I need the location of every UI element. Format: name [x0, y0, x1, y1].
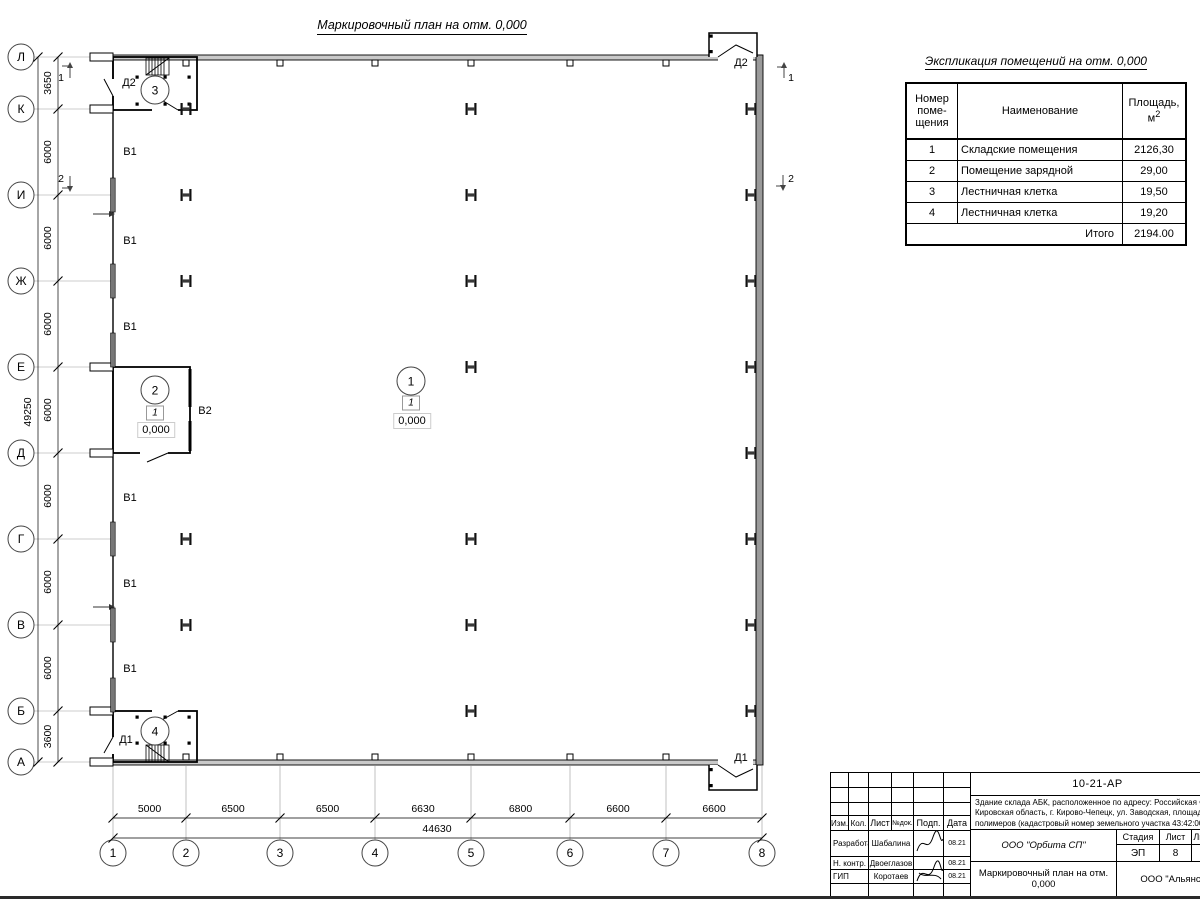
plan-annotation: В1 — [123, 146, 136, 158]
signature-icon — [914, 859, 945, 887]
section-mark-label: 1 — [788, 72, 794, 84]
plan-annotation: Д1 — [119, 734, 133, 746]
columns-header-row: Изм. Кол. Лист №док. Подп. Дата — [831, 816, 970, 831]
explication-title-text: Экспликация помещений на отм. 0,000 — [925, 54, 1147, 70]
drawing-sheet: Маркировочный план на отм. 0,000 — [0, 0, 1200, 900]
floor-flag: 1 — [146, 406, 164, 421]
table-row: 3Лестничная клетка19,50 — [906, 182, 1186, 203]
role-row: Н. контр. Двоеглазов 08.21 — [831, 857, 970, 871]
section-mark-label: 1 — [58, 72, 64, 84]
title-block-left: Изм. Кол. Лист №док. Подп. Дата Разработ… — [831, 773, 970, 897]
plan-labels: Д2Д2Д1Д1В1В1В1В1В1В1В212123214110,0000,0… — [0, 0, 880, 900]
sheet-name: Маркировочный план на отм. 0,000 — [971, 862, 1117, 897]
explication-table: Номер поме- щения Наименование Площадь, … — [905, 82, 1187, 246]
table-row: 4Лестничная клетка19,20 — [906, 203, 1186, 224]
object-description: Здание склада АБК, расположенное по адре… — [971, 796, 1200, 830]
section-mark-label: 2 — [788, 173, 794, 185]
plan-annotation: В1 — [123, 235, 136, 247]
contractor-org: ООО "Альянс — [1117, 862, 1200, 897]
room-number-marker: 4 — [141, 717, 170, 746]
floor-flag: 1 — [402, 396, 420, 411]
total-value: 2194.00 — [1123, 224, 1187, 246]
plan-annotation: В1 — [123, 321, 136, 333]
table-cell-name: Складские помещения — [958, 139, 1123, 161]
section-mark-label: 2 — [58, 173, 64, 185]
col-header-area: Площадь, м2 — [1123, 83, 1187, 139]
table-cell-num: 3 — [906, 182, 958, 203]
table-cell-name: Лестничная клетка — [958, 182, 1123, 203]
table-cell-num: 4 — [906, 203, 958, 224]
room-number-marker: 2 — [141, 376, 170, 405]
revision-row — [831, 803, 970, 817]
table-cell-name: Лестничная клетка — [958, 203, 1123, 224]
document-number: 10-21-АР — [971, 773, 1200, 796]
plan-annotation: В2 — [198, 405, 211, 417]
col-header-name: Наименование — [958, 83, 1123, 139]
room-number-marker: 1 — [397, 367, 426, 396]
col-header-number: Номер поме- щения — [906, 83, 958, 139]
plan-annotation: Д2 — [734, 57, 748, 69]
title-block: Изм. Кол. Лист №док. Подп. Дата Разработ… — [830, 772, 1200, 898]
table-cell-area: 29,00 — [1123, 161, 1187, 182]
revision-row — [831, 788, 970, 803]
room-number-marker: 3 — [141, 76, 170, 105]
plan-annotation: В1 — [123, 663, 136, 675]
design-org: ООО "Орбита СП" — [971, 830, 1117, 861]
table-cell-area: 19,50 — [1123, 182, 1187, 203]
plan-annotation: В1 — [123, 578, 136, 590]
signature-icon — [914, 831, 945, 857]
sheet-frame-bottom — [0, 896, 1200, 899]
plan-annotation: Д1 — [734, 752, 748, 764]
explication-title: Экспликация помещений на отм. 0,000 — [900, 52, 1172, 70]
plan-annotation: Д2 — [122, 77, 136, 89]
title-block-right: 10-21-АР Здание склада АБК, расположенно… — [970, 773, 1200, 897]
table-cell-num: 2 — [906, 161, 958, 182]
role-row: ГИП Коротаев 08.21 — [831, 870, 970, 884]
revision-row — [831, 773, 970, 788]
table-cell-area: 2126,30 — [1123, 139, 1187, 161]
plan-annotation: В1 — [123, 492, 136, 504]
table-cell-area: 19,20 — [1123, 203, 1187, 224]
table-cell-name: Помещение зарядной — [958, 161, 1123, 182]
table-row: 1Складские помещения2126,30 — [906, 139, 1186, 161]
total-row: Итого 2194.00 — [906, 224, 1186, 246]
level-marker: 0,000 — [393, 413, 431, 429]
table-row: 2Помещение зарядной29,00 — [906, 161, 1186, 182]
total-label: Итого — [906, 224, 1123, 246]
role-row: Разработал Шабалина 08.21 — [831, 831, 970, 857]
table-cell-num: 1 — [906, 139, 958, 161]
stage-sheet-grid: Стадия Лист Листов ЭП 8 17 — [1117, 830, 1200, 861]
level-marker: 0,000 — [137, 422, 175, 438]
